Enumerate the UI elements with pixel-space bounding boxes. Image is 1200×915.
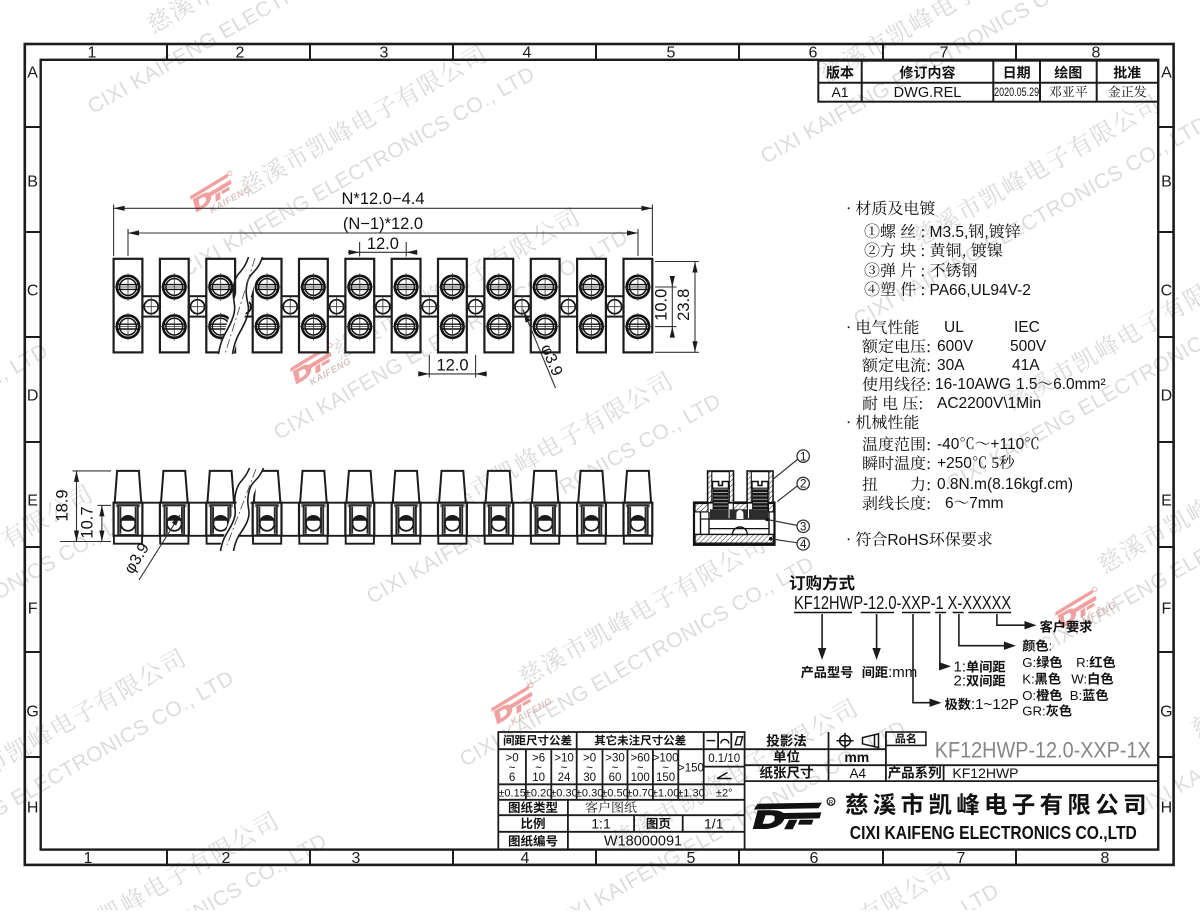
svg-text:100: 100 [631, 772, 650, 784]
svg-text:D: D [27, 388, 39, 405]
svg-text:3: 3 [352, 850, 361, 867]
svg-text:C: C [27, 283, 39, 300]
svg-text:1: 1 [88, 44, 97, 61]
svg-text:2: 2 [800, 479, 806, 491]
svg-text:2: 2 [236, 44, 245, 61]
svg-text:A: A [1161, 65, 1172, 82]
svg-text:版本: 版本 [826, 63, 854, 83]
svg-text:D: D [1161, 388, 1173, 405]
svg-text:慈溪市凯峰电子有限公司: 慈溪市凯峰电子有限公司 [845, 786, 1151, 820]
svg-text:1/1: 1/1 [704, 815, 724, 831]
svg-text:1:1: 1:1 [591, 815, 611, 831]
svg-text:1.5～6.0mm²: 1.5～6.0mm² [1016, 372, 1106, 394]
svg-text:10.0: 10.0 [653, 289, 671, 321]
svg-text:7: 7 [957, 850, 966, 867]
svg-text:3: 3 [380, 44, 389, 61]
svg-text:日期: 日期 [1003, 63, 1031, 83]
svg-text:23.8: 23.8 [675, 289, 693, 321]
svg-text:KF12HWP-12.0-XXP-1 X-XXXXX: KF12HWP-12.0-XXP-1 X-XXXXX [794, 593, 1011, 613]
svg-text:IEC: IEC [1014, 319, 1040, 336]
svg-text:18.9: 18.9 [54, 489, 72, 521]
svg-text:24: 24 [558, 772, 571, 784]
svg-text:4: 4 [800, 539, 807, 551]
svg-text:剥线长度:: 剥线长度: [862, 491, 931, 514]
svg-text:KF12HWP-12.0-XXP-1X: KF12HWP-12.0-XXP-1X [935, 738, 1151, 763]
svg-text:· 材质及电镀: · 材质及电镀 [846, 196, 935, 219]
svg-text:图纸编号: 图纸编号 [508, 830, 558, 849]
svg-text:600V: 600V [937, 338, 974, 355]
svg-text:绘图: 绘图 [1054, 63, 1082, 83]
svg-text:B:蓝色: B:蓝色 [1070, 685, 1109, 704]
svg-text:邓亚平: 邓亚平 [1049, 82, 1088, 101]
svg-text:5: 5 [687, 850, 696, 867]
svg-text:6: 6 [809, 44, 818, 61]
svg-text:B: B [1161, 174, 1172, 191]
svg-text:H: H [27, 800, 39, 817]
svg-text:N*12.0−4.4: N*12.0−4.4 [341, 190, 424, 208]
svg-text:DWG.REL: DWG.REL [894, 85, 962, 101]
svg-text:500V: 500V [1010, 338, 1047, 355]
svg-text:修订内容: 修订内容 [900, 63, 956, 83]
svg-text:图页: 图页 [646, 813, 671, 832]
svg-text:批准: 批准 [1113, 63, 1141, 83]
svg-text:7: 7 [940, 44, 949, 61]
svg-text:+250℃ 5秒: +250℃ 5秒 [937, 451, 1015, 473]
svg-text:60: 60 [609, 772, 622, 784]
svg-text:30A: 30A [937, 357, 965, 374]
svg-text:极数:1~12P: 极数:1~12P [945, 694, 1019, 713]
svg-text:客户要求: 客户要求 [1040, 617, 1093, 636]
svg-text:金正发: 金正发 [1108, 82, 1147, 101]
svg-text:间距:mm: 间距:mm [862, 662, 918, 681]
svg-text:2: 2 [222, 850, 231, 867]
svg-text:产品系列: 产品系列 [888, 762, 942, 782]
svg-text:E: E [27, 493, 38, 510]
svg-text:E: E [1161, 493, 1172, 510]
svg-text:1: 1 [84, 850, 93, 867]
svg-text:8: 8 [1092, 44, 1101, 61]
svg-text:6: 6 [810, 850, 819, 867]
svg-text:G: G [1160, 704, 1172, 721]
svg-text:品名: 品名 [895, 731, 917, 747]
svg-text:H: H [1161, 800, 1173, 817]
svg-text:F: F [1162, 601, 1172, 618]
svg-text:A4: A4 [850, 766, 867, 781]
svg-text:· 机械性能: · 机械性能 [846, 410, 919, 433]
svg-text:AC2200V\1Min: AC2200V\1Min [937, 395, 1041, 412]
svg-text:B: B [27, 174, 38, 191]
svg-text:CIXI KAIFENG ELECTRONICS CO.,L: CIXI KAIFENG ELECTRONICS CO.,LTD [850, 822, 1137, 843]
svg-text:150: 150 [656, 772, 675, 784]
svg-text:16-10AWG: 16-10AWG [935, 376, 1011, 393]
svg-text:1: 1 [800, 451, 806, 463]
svg-text:KF12HWP: KF12HWP [952, 765, 1018, 781]
svg-text:8: 8 [1101, 850, 1110, 867]
svg-text:W18000091: W18000091 [604, 834, 682, 850]
svg-text:UL: UL [944, 319, 964, 336]
svg-text:3: 3 [800, 522, 806, 534]
svg-text:>150: >150 [678, 763, 704, 775]
svg-text:6: 6 [509, 772, 515, 784]
svg-text:瞬时温度:: 瞬时温度: [862, 451, 931, 474]
svg-text:mm: mm [844, 749, 869, 765]
svg-text:GR:灰色: GR:灰色 [1022, 701, 1072, 720]
svg-text:A: A [27, 65, 38, 82]
svg-text:其它未注尺寸公差: 其它未注尺寸公差 [594, 733, 686, 749]
svg-text:41A: 41A [1012, 357, 1040, 374]
svg-text:12.0: 12.0 [436, 357, 468, 375]
svg-text:产品型号: 产品型号 [801, 662, 854, 681]
svg-text:4: 4 [521, 850, 530, 867]
svg-text:±1.00: ±1.00 [652, 787, 679, 799]
svg-text:订购方式: 订购方式 [789, 570, 856, 594]
svg-text:R: R [829, 799, 834, 806]
svg-text:(N−1)*12.0: (N−1)*12.0 [343, 215, 423, 233]
svg-text:12.0: 12.0 [367, 235, 399, 253]
svg-text:C: C [1161, 283, 1173, 300]
svg-text:间距尺寸公差: 间距尺寸公差 [503, 733, 572, 749]
svg-text:客户图纸: 客户图纸 [585, 797, 637, 816]
svg-text:10: 10 [532, 772, 545, 784]
svg-text:5: 5 [667, 44, 676, 61]
svg-text:A1: A1 [831, 84, 848, 100]
svg-text:6～7mm: 6～7mm [945, 491, 1004, 513]
svg-text:2:双间距: 2:双间距 [954, 671, 1006, 690]
svg-text:10.7: 10.7 [79, 506, 97, 538]
svg-text:0.1/10: 0.1/10 [708, 753, 740, 765]
svg-text:纸张尺寸: 纸张尺寸 [760, 762, 814, 782]
svg-text:G: G [26, 704, 38, 721]
svg-text:4: 4 [523, 44, 532, 61]
svg-text:2020.05.29: 2020.05.29 [994, 87, 1039, 99]
svg-text:±2°: ±2° [716, 787, 733, 799]
svg-text:±1.30: ±1.30 [677, 787, 704, 799]
svg-text:F: F [28, 601, 38, 618]
svg-text:30: 30 [583, 772, 596, 784]
